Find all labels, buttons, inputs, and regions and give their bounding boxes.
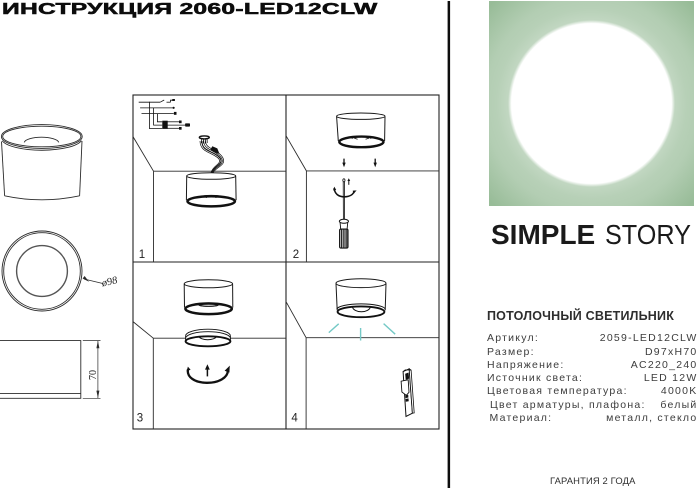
svg-text:70: 70 (88, 370, 99, 380)
svg-text:2: 2 (293, 249, 299, 261)
svg-text:1: 1 (139, 249, 145, 261)
svg-text:ø98: ø98 (100, 275, 120, 290)
svg-text:4: 4 (291, 413, 298, 425)
svg-text:3: 3 (137, 413, 143, 425)
